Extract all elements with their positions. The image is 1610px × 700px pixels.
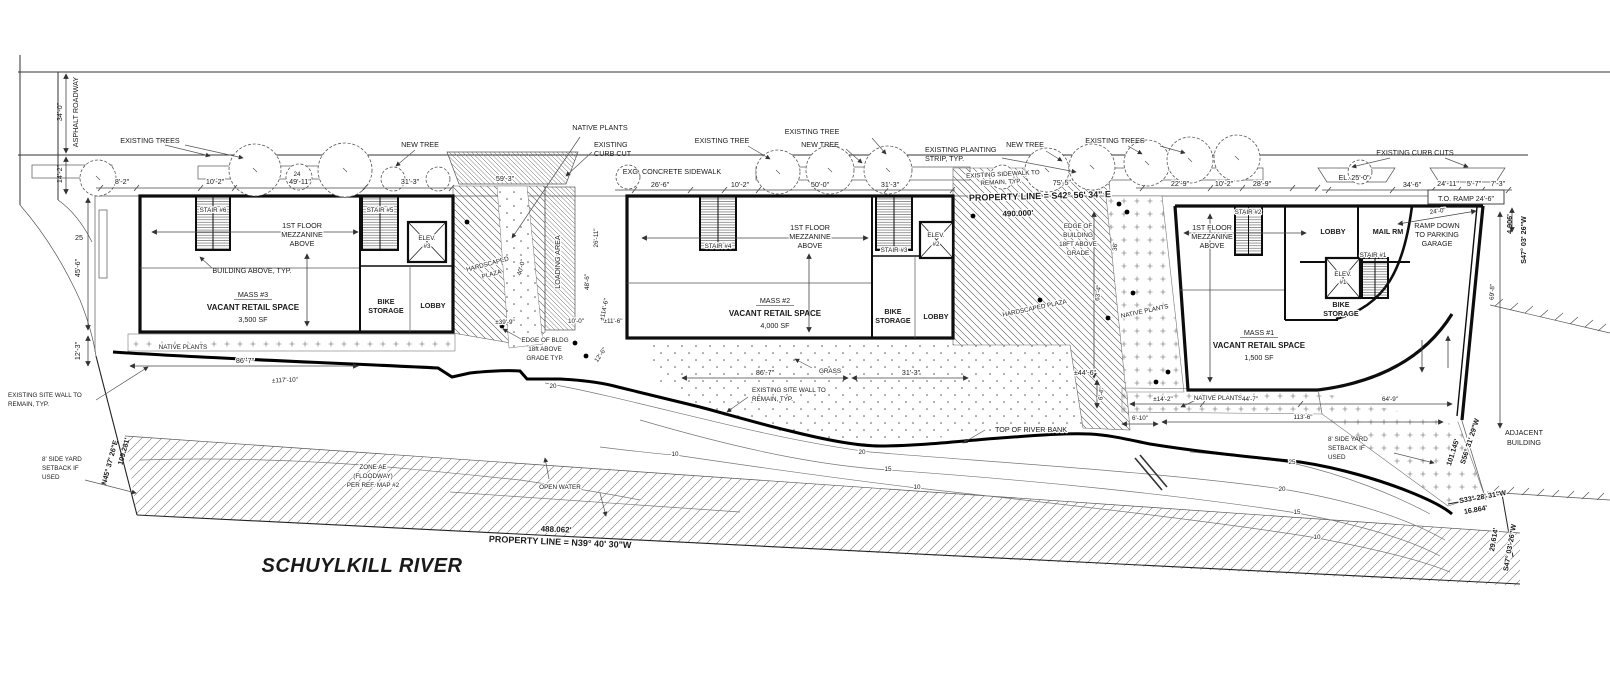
ramp-label-l2: TO PARKING	[1415, 230, 1459, 239]
adjacent-building-l2: BUILDING	[1507, 438, 1541, 447]
property-line-west	[96, 356, 137, 515]
contour-label-20: 20	[858, 449, 866, 456]
mail-rm-label: MAIL RM	[1373, 227, 1404, 236]
site-wall-mid-l1: EXISTING SITE WALL TO	[752, 387, 826, 394]
mass-3-use: VACANT RETAIL SPACE	[207, 303, 300, 312]
tree-tag-24: 24	[293, 171, 301, 178]
ramp-label-l1: RAMP DOWN	[1414, 221, 1459, 230]
dim-28-9: 28'-9"	[1253, 179, 1272, 188]
mezz-label-l2: MEZZANINE	[281, 230, 323, 239]
existing-curb-cuts-label: EXISTING CURB CUTS	[1376, 148, 1454, 157]
stair-5	[362, 196, 398, 250]
mezz-label-l2: MEZZANINE	[1191, 232, 1233, 241]
native-plants-bottom-label: NATIVE PLANTS	[1194, 395, 1243, 402]
contour-label-25: 25	[1288, 459, 1296, 466]
mass-1-use: VACANT RETAIL SPACE	[1213, 341, 1306, 350]
dim-5-7: 5'-7"	[1467, 179, 1482, 188]
contour-label-20: 20	[549, 383, 557, 390]
dim-26-11: 26'-11"	[593, 228, 600, 247]
planting-strip-l2: STRIP, TYP.	[925, 154, 964, 163]
mezz-label-l3: ABOVE	[1200, 241, 1225, 250]
stair-6	[196, 196, 230, 250]
elev-2-label: ELEV.	[927, 232, 945, 239]
dim-14-2: 14'-2"	[55, 164, 64, 183]
exg-sidewalk-label: EXG. CONCRETE SIDEWALK	[623, 167, 722, 176]
bike-storage-l1: BIKE	[377, 297, 394, 306]
river-title: SCHUYLKILL RIVER	[262, 555, 463, 577]
west-edge-curve	[20, 205, 96, 356]
stair-3-label: STAIR #3	[881, 247, 908, 254]
zone-ae-l1: ZONE AE	[359, 464, 386, 471]
dim-64-9: 64'-9"	[1382, 396, 1398, 403]
adjacent-building-l1: ADJACENT	[1505, 428, 1544, 437]
dim-488: 488.062'	[541, 524, 572, 534]
bike-storage-l2: STORAGE	[875, 316, 911, 325]
new-tree-label: NEW TREE	[401, 140, 439, 149]
elev-2-number: #2	[932, 241, 940, 248]
dim-117-10: ±117'-10"	[272, 377, 298, 385]
edge-of-building-l3: 18FT ABOVE	[1059, 241, 1097, 248]
dim-el-25: EL. 25'-0"	[1338, 173, 1370, 182]
dim-10-0: 10'-0"	[568, 318, 584, 325]
site-plan-page: ASPHALT ROADWAY 34'-0" 14'-2" 45'-6" 12'…	[0, 0, 1610, 700]
lobby-label: LOBBY	[923, 312, 948, 321]
asphalt-roadway-label: ASPHALT ROADWAY	[71, 77, 80, 148]
dim-44-7: 44'-7"	[1242, 396, 1258, 403]
building-above-label: BUILDING ABOVE, TYP.	[212, 266, 291, 275]
dim-16-864: 16.864'	[1463, 503, 1488, 516]
dim-22-9: 22'-9"	[1171, 179, 1190, 188]
edge-of-building-l4: GRADE	[1067, 250, 1089, 257]
mass-1-name: MASS #1	[1244, 328, 1274, 337]
bike-storage-l1: BIKE	[1332, 300, 1349, 309]
side-yard-right-l1: 8' SIDE YARD	[1328, 436, 1368, 443]
stair-1-label: STAIR #1	[1360, 252, 1387, 259]
dim-49-11: 49'-11"	[289, 177, 311, 186]
site-wall-left-l1: EXISTING SITE WALL TO	[8, 392, 82, 399]
dim-26-6: 26'-6"	[651, 180, 670, 189]
dim-34-0: 34'-0"	[55, 102, 64, 121]
dim-7-3: 7'-3"	[1491, 179, 1506, 188]
grass-label: GRASS	[819, 368, 841, 375]
side-yard-left-l2: SETBACK IF	[42, 465, 79, 472]
edge-of-building-l2: BUILDING	[1063, 232, 1093, 239]
stair-4-label: STAIR #4	[705, 243, 732, 250]
mass-2-name: MASS #2	[760, 296, 790, 305]
ramp-label-l3: GARAGE	[1422, 239, 1453, 248]
dim-75-5: 75'-5"	[1053, 178, 1072, 188]
dim-10-2: 10'-2"	[731, 180, 750, 189]
site-plan-drawing: ASPHALT ROADWAY 34'-0" 14'-2" 45'-6" 12'…	[0, 0, 1610, 700]
dim-24-11: 24'-11"	[1437, 179, 1459, 188]
dim-44-6: ±44'-6"	[1074, 368, 1097, 377]
contour-label-10: 10	[1313, 534, 1321, 541]
edge-of-bldg-l2: 18ft ABOVE	[528, 346, 562, 353]
elev-3-label: ELEV.	[418, 235, 436, 242]
stair-2-label: STAIR #2	[1235, 209, 1262, 216]
contour-label-20: 20	[1278, 486, 1286, 493]
stair-5-label: STAIR #5	[367, 207, 394, 214]
elevator-2	[920, 222, 953, 258]
adjacent-hatch-ticks	[1492, 486, 1604, 500]
mezz-label-l1: 1ST FLOOR	[790, 223, 830, 232]
mass-2-sf: 4,000 SF	[760, 321, 790, 330]
existing-curb-cut-l1: EXISTING	[594, 140, 628, 149]
existing-trees-label: EXISTING TREES	[120, 136, 180, 145]
dim-8-2: 8'-2"	[115, 177, 130, 186]
zone-ae-l3: PER REF. MAP #2	[347, 482, 400, 489]
bearing-s47-top: S47° 03' 26"W	[1519, 216, 1528, 264]
dim-86-7: 86'-7"	[236, 356, 255, 365]
new-tree-label: NEW TREE	[801, 140, 839, 149]
dim-4-906: 4.906'	[1505, 214, 1514, 234]
edge-of-bldg-l1: EDGE OF BLDG	[521, 337, 568, 344]
loading-area-label: LOADING AREA	[553, 235, 562, 289]
mass-3-name: MASS #3	[238, 290, 268, 299]
mezz-label-l3: ABOVE	[798, 241, 823, 250]
open-water-label: OPEN WATER	[539, 484, 581, 491]
stair-6-label: STAIR #6	[200, 207, 227, 214]
side-yard-right-l3: USED	[1328, 454, 1346, 461]
lobby-label: LOBBY	[1320, 227, 1345, 236]
edge-of-bldg-l3: GRADE TYP.	[526, 355, 563, 362]
side-yard-left-l1: 8' SIDE YARD	[42, 456, 82, 463]
dim-12-6: 12'-6"	[593, 347, 608, 364]
contour-label-15: 15	[1293, 509, 1301, 516]
dim-490: 490.000'	[1002, 208, 1033, 218]
planting-strip-l1: EXISTING PLANTING	[925, 145, 997, 154]
mezz-label-l3: ABOVE	[290, 239, 315, 248]
existing-trees-label: EXISTING TREES	[1085, 136, 1145, 145]
stair-4	[700, 196, 736, 250]
side-yard-right-l2: SETBACK IF	[1328, 445, 1365, 452]
elev-3-number: #3	[423, 243, 431, 250]
existing-tree-label: EXISTING TREE	[785, 127, 840, 136]
dim-11-6: ±11'-6"	[603, 318, 622, 325]
dim-31-3: 31'-3"	[401, 177, 420, 186]
side-yard-left-l3: USED	[42, 474, 60, 481]
stair-3	[876, 196, 912, 250]
site-wall-mid-l2: REMAIN, TYP.	[752, 396, 793, 403]
edge-of-building-l1: EDGE OF	[1064, 223, 1092, 230]
mass-1-sf: 1,500 SF	[1244, 353, 1274, 362]
bike-storage-l2: STORAGE	[1323, 309, 1359, 318]
dim-31-3c: 31'-3"	[902, 368, 921, 377]
dim-34-6: 34'-6"	[1403, 180, 1422, 189]
contour-label-25: 25	[75, 233, 83, 242]
dim-14-2b: ±14'-2"	[1153, 396, 1173, 403]
contour-label-15: 15	[884, 466, 892, 473]
native-plants-strip-label: NATIVE PLANTS	[159, 344, 208, 351]
adjacent-hatch-ticks	[1495, 299, 1606, 331]
dim-48-6: 48'-6"	[584, 274, 591, 290]
site-wall-left-l2: REMAIN, TYP.	[8, 401, 49, 408]
dim-36: 36'	[1112, 242, 1120, 251]
native-plants-label: NATIVE PLANTS	[572, 123, 628, 132]
mezz-label-l2: MEZZANINE	[789, 232, 831, 241]
existing-tree-label: EXISTING TREE	[695, 136, 750, 145]
dim-50-0: 50'-0"	[811, 180, 830, 189]
river-outfall	[1135, 455, 1167, 490]
dim-6-10: 6'-10"	[1132, 415, 1148, 422]
dim-31-3: 31'-3"	[881, 180, 900, 189]
elev-1-number: #1	[1339, 279, 1347, 286]
dim-59-3: 59'-3"	[496, 174, 515, 183]
dim-113-6: 113'-6"	[1293, 414, 1312, 421]
dim-10-2: 10'-2"	[206, 177, 225, 186]
mezz-label-l1: 1ST FLOOR	[282, 221, 322, 230]
new-tree-label: NEW TREE	[1006, 140, 1044, 149]
stair-1	[1362, 258, 1388, 298]
dim-86-7b: 86'-7"	[756, 368, 775, 377]
mass-3-sf: 3,500 SF	[238, 315, 268, 324]
elev-1-label: ELEV.	[1334, 271, 1352, 278]
contour-label-10: 10	[671, 451, 679, 458]
dim-12-3: 12'-3"	[73, 341, 82, 360]
mezz-label-l1: 1ST FLOOR	[1192, 223, 1232, 232]
existing-curb-cut-l2: CURB CUT	[594, 149, 632, 158]
mass-2-use: VACANT RETAIL SPACE	[729, 309, 822, 318]
lobby-label: LOBBY	[420, 301, 445, 310]
existing-wall-stub	[99, 210, 107, 278]
elevator-3	[408, 222, 446, 262]
dim-45-6: 45'-6"	[73, 258, 82, 277]
dim-69-8: 69'-8"	[1489, 284, 1497, 300]
dim-39-9: ±39'-9"	[495, 319, 515, 326]
bike-storage-l2: STORAGE	[368, 306, 404, 315]
contour-label-10: 10	[913, 484, 921, 491]
dim-10-2: 10'-2"	[1215, 179, 1234, 188]
adjacent-boundary-north	[1490, 305, 1610, 333]
dim-6-4: 6'-4"	[1097, 387, 1105, 400]
bike-storage-l1: BIKE	[884, 307, 901, 316]
zone-ae-l2: (FLOODWAY)	[353, 473, 393, 480]
to-ramp-label: T.O. RAMP 24'-6"	[1438, 194, 1495, 203]
elevator-1	[1326, 258, 1360, 298]
top-of-river-bank-label: TOP OF RIVER BANK	[995, 425, 1067, 434]
